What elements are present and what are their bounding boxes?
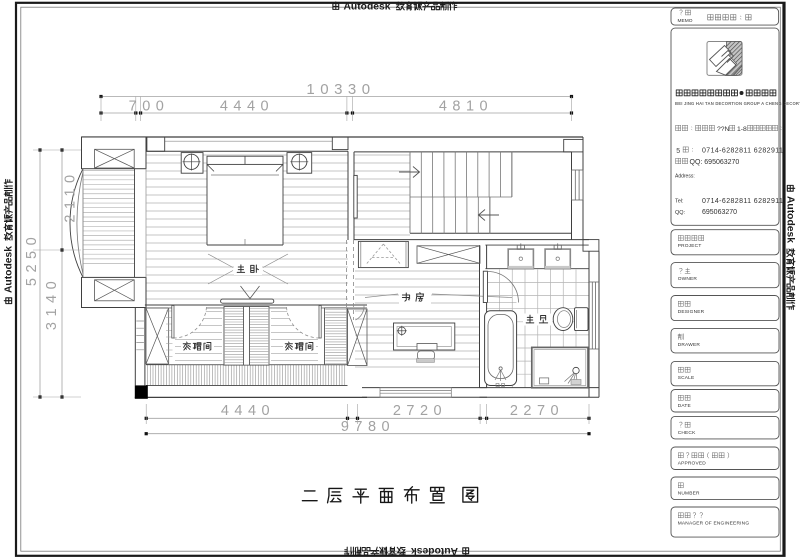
svg-text:4810: 4810	[439, 99, 493, 115]
svg-text:Address:: Address:	[675, 174, 695, 180]
svg-text:4440: 4440	[220, 99, 274, 115]
svg-text:SCALE: SCALE	[678, 375, 695, 381]
svg-text:DRAWER: DRAWER	[678, 342, 701, 348]
svg-text:Autodesk: Autodesk	[344, 1, 391, 12]
svg-text:??N: ??N	[717, 126, 730, 133]
svg-text:695063270: 695063270	[702, 209, 737, 216]
svg-text:700: 700	[129, 99, 170, 115]
svg-text:Autodesk: Autodesk	[411, 545, 458, 556]
svg-text:Autodesk: Autodesk	[4, 246, 15, 293]
svg-text:2720: 2720	[393, 403, 447, 419]
svg-text:5: 5	[676, 148, 680, 155]
svg-text:1-8: 1-8	[737, 126, 747, 133]
svg-text:QQ:: QQ:	[675, 210, 686, 216]
svg-text:DESIGNER: DESIGNER	[678, 309, 705, 315]
svg-text:3140: 3140	[44, 276, 60, 330]
svg-text:0714-6282811 6282911: 0714-6282811 6282911	[702, 148, 783, 155]
svg-text:CHECK: CHECK	[678, 430, 696, 436]
svg-text:0714-6282811 6282911: 0714-6282811 6282911	[702, 198, 783, 205]
svg-text:NUMBER: NUMBER	[678, 491, 700, 497]
svg-text:2270: 2270	[510, 403, 564, 419]
svg-text:MANAGER OF ENGINEERING: MANAGER OF ENGINEERING	[678, 521, 750, 527]
svg-text:9780: 9780	[341, 419, 395, 435]
svg-text:OWNER: OWNER	[678, 276, 698, 282]
svg-text:4440: 4440	[221, 403, 275, 419]
svg-text:2110: 2110	[63, 169, 79, 222]
svg-text:MEMO: MEMO	[678, 18, 693, 24]
svg-text:BEI JING HAI TAN DECORTION GRO: BEI JING HAI TAN DECORTION GROUP A CHENG…	[675, 101, 800, 106]
svg-text:QQ: 695063270: QQ: 695063270	[690, 159, 740, 166]
svg-text:PROJECT: PROJECT	[678, 243, 702, 249]
svg-text:Tel:: Tel:	[675, 199, 684, 205]
svg-text:10330: 10330	[306, 81, 375, 98]
svg-text:Autodesk: Autodesk	[784, 196, 795, 243]
svg-text:APPROVED: APPROVED	[678, 461, 707, 467]
svg-text:DATE: DATE	[678, 403, 691, 409]
svg-text:5250: 5250	[24, 232, 40, 286]
